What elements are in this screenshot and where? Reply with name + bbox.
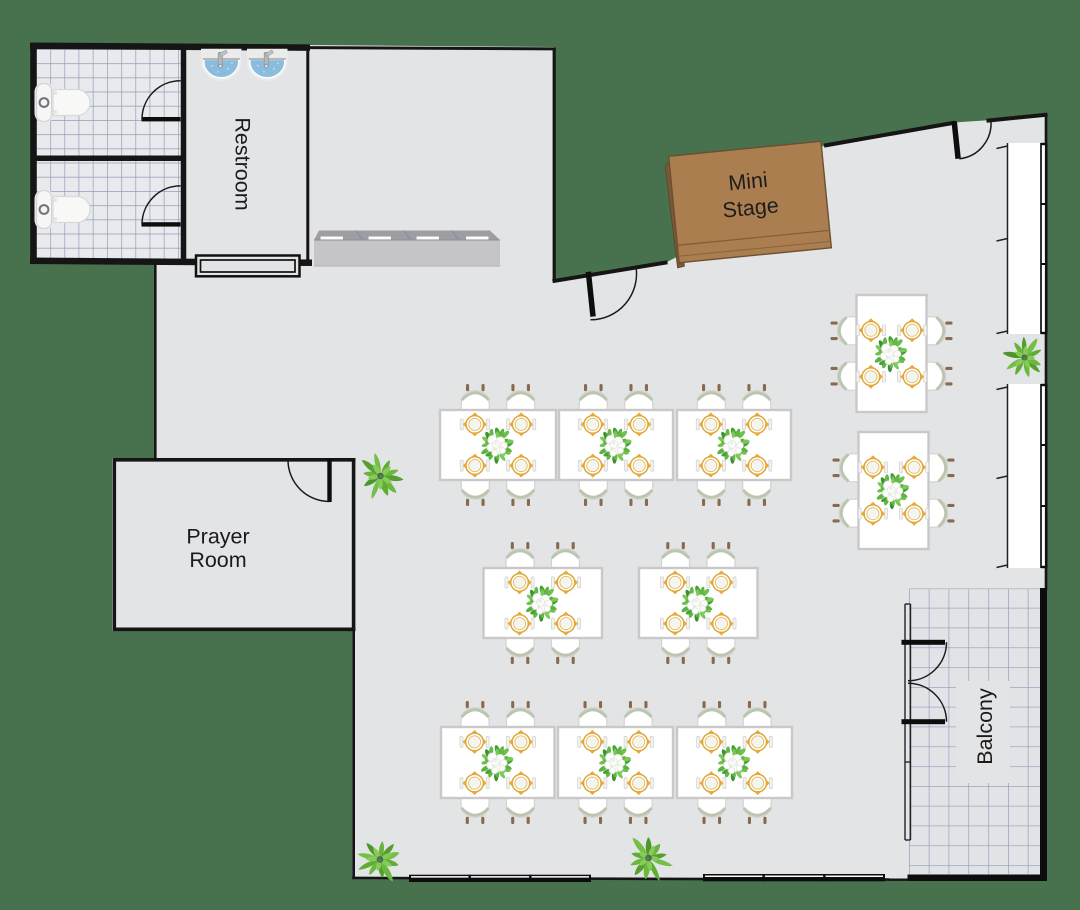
svg-text:Prayer: Prayer	[186, 525, 249, 549]
svg-text:Room: Room	[189, 548, 246, 572]
svg-text:Balcony: Balcony	[973, 688, 997, 765]
svg-text:Restroom: Restroom	[230, 117, 254, 210]
svg-text:Mini: Mini	[727, 168, 769, 196]
